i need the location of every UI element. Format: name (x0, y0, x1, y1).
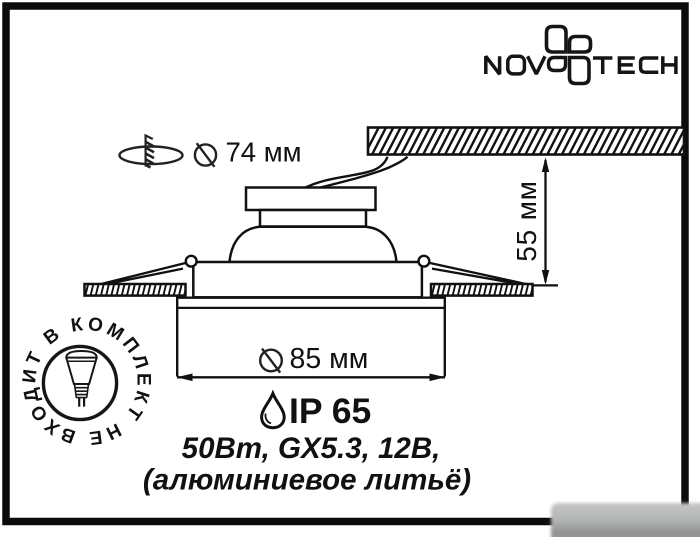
svg-text:IP 65: IP 65 (289, 391, 371, 431)
svg-text:74 мм: 74 мм (226, 137, 302, 168)
svg-text:55 мм: 55 мм (511, 180, 542, 261)
svg-text:85 мм: 85 мм (290, 343, 369, 375)
svg-text:50Вт, GX5.3, 12В,: 50Вт, GX5.3, 12В, (182, 432, 441, 465)
svg-text:(алюминиевое литьё): (алюминиевое литьё) (143, 464, 471, 497)
